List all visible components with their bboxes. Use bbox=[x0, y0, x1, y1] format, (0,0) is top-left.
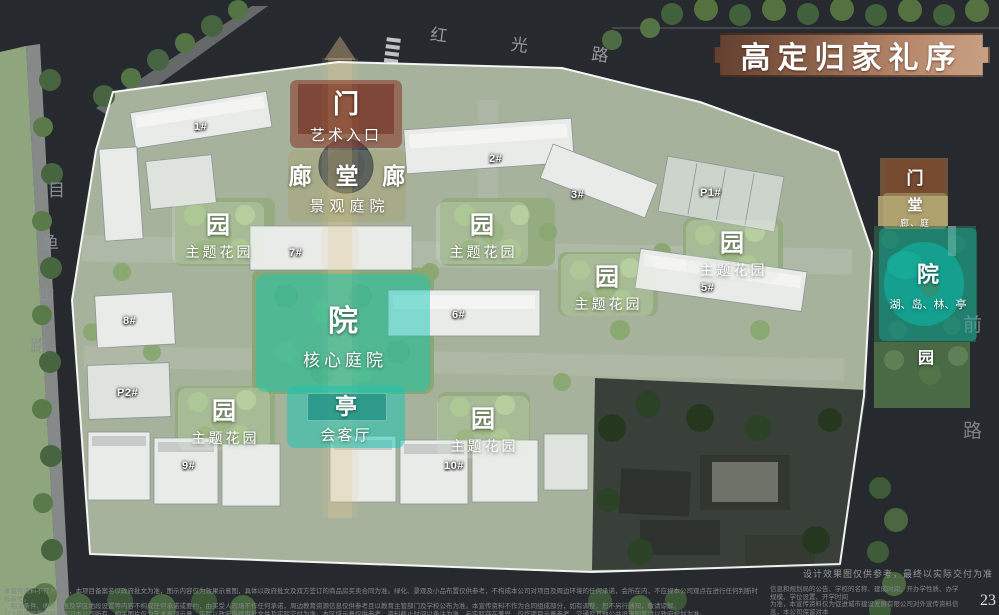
label-east-court: 院 湖、岛、林、亭 bbox=[879, 228, 977, 341]
render-disclaimer-note: 设计效果图仅供参考，最终以实际交付为准 bbox=[803, 567, 993, 580]
road-label-left-char: 山 bbox=[38, 280, 55, 305]
label-corridor-hall: 廊 堂 廊 景观庭院 bbox=[288, 150, 406, 222]
label-gate-sub: 艺术入口 bbox=[310, 124, 382, 145]
disclaimer-left-block: 本宣传资料不作为要约，本项目备案名以政府批文为准，图示内容仅为效果示意图，具体以… bbox=[4, 588, 764, 615]
disclaimer-line: 以上内容的最终解释权归本公司所有。相关图片仅为艺术表现示意，实际以政府最终审批文… bbox=[4, 611, 764, 615]
building-label: 9# bbox=[182, 460, 195, 472]
garden-char: 园 bbox=[595, 257, 619, 292]
disclaimer-right-block: 信息和规划局的公告、学校的名称、建成时间、开办学性质、办学规模、学位设置、开学时… bbox=[770, 586, 964, 615]
label-theme-garden: 园 主题花园 bbox=[561, 254, 653, 316]
label-theme-garden: 园 主题花园 bbox=[178, 388, 270, 450]
east-hall-char: 堂 bbox=[907, 194, 922, 215]
building-label: 1# bbox=[194, 121, 207, 133]
site-plan-page: 高定归家礼序 红 光 路 目 鱼 山 路 前 路 门 艺术入口 廊 堂 廊 景观… bbox=[0, 0, 999, 615]
building-label: 5# bbox=[701, 282, 714, 294]
road-label-right-char: 路 bbox=[963, 416, 982, 443]
garden-char: 园 bbox=[206, 205, 230, 240]
garden-char: 园 bbox=[720, 223, 744, 258]
building-label: P1# bbox=[700, 187, 721, 199]
label-east-gate: 门 bbox=[886, 160, 944, 193]
title-banner: 高定归家礼序 bbox=[713, 33, 990, 77]
road-label-left-char: 鱼 bbox=[42, 228, 59, 253]
building-label: 6# bbox=[452, 309, 465, 321]
east-court-char: 院 bbox=[917, 257, 939, 289]
garden-char: 园 bbox=[471, 399, 495, 434]
label-east-hall: 堂 廊、庭 bbox=[883, 193, 947, 229]
aerial-photo-region bbox=[592, 378, 867, 570]
building-label: 3# bbox=[571, 189, 584, 201]
disclaimer-line: 本宣传资料不作为要约，本项目备案名以政府批文为准，图示内容仅为效果示意图，具体以… bbox=[4, 588, 764, 603]
garden-sub: 主题花园 bbox=[451, 436, 519, 456]
road-label-left-char: 目 bbox=[48, 176, 65, 201]
east-hall-sub: 廊、庭 bbox=[900, 216, 930, 229]
building-label: 8# bbox=[123, 315, 136, 327]
east-gate-char: 门 bbox=[907, 164, 924, 189]
road-label-left-char: 路 bbox=[30, 332, 47, 357]
label-theme-garden: 园 主题花园 bbox=[686, 220, 778, 282]
label-east-garden: 园 bbox=[918, 344, 934, 368]
building-label: 2# bbox=[489, 153, 502, 165]
building-label: 7# bbox=[289, 247, 302, 259]
garden-sub: 主题花园 bbox=[450, 242, 518, 262]
label-theme-garden: 园 主题花园 bbox=[436, 202, 528, 264]
pavilion-sub: 会客厅 bbox=[320, 424, 371, 445]
garden-sub: 主题花园 bbox=[700, 260, 768, 280]
label-corridor-chars: 廊 堂 廊 bbox=[289, 157, 415, 191]
label-theme-garden: 园 主题花园 bbox=[437, 396, 529, 458]
core-sub: 核心庭院 bbox=[303, 346, 387, 371]
core-char: 院 bbox=[328, 296, 358, 340]
garden-char: 园 bbox=[470, 205, 494, 240]
page-number: 23 bbox=[980, 592, 996, 610]
label-gate-char: 门 bbox=[333, 84, 359, 121]
disclaimer-line: 信息和规划局的公告、学校的名称、建成时间、开办学性质、办学规模、学位设置、开学时… bbox=[770, 586, 964, 601]
pavilion-char: 亭 bbox=[335, 389, 357, 421]
garden-char: 园 bbox=[212, 391, 236, 426]
garden-sub: 主题花园 bbox=[192, 428, 260, 448]
disclaimer-line: 、相关条件、收费标准及学区地段设置等内容不构成任何承诺或要约，由买受人现场不作任… bbox=[4, 603, 764, 611]
label-core-courtyard: 院 核心庭院 bbox=[256, 274, 430, 392]
label-corridor-sub: 景观庭院 bbox=[309, 195, 389, 216]
garden-sub: 主题花园 bbox=[186, 242, 254, 262]
site-plan-graphic bbox=[0, 0, 999, 615]
building-label: P2# bbox=[117, 387, 138, 399]
label-theme-garden: 园 主题花园 bbox=[172, 202, 264, 264]
disclaimer-line: 为准，本宣传资料仅为促进城市建设发展有限公司对外宣传资料信息，本公司保留对本 bbox=[770, 601, 964, 615]
label-reception-pavilion: 亭 会客厅 bbox=[287, 386, 405, 448]
label-art-entrance: 门 艺术入口 bbox=[290, 80, 402, 148]
garden-sub: 主题花园 bbox=[575, 294, 643, 314]
building-label: 10# bbox=[444, 460, 464, 472]
east-court-sub: 湖、岛、林、亭 bbox=[890, 296, 967, 312]
